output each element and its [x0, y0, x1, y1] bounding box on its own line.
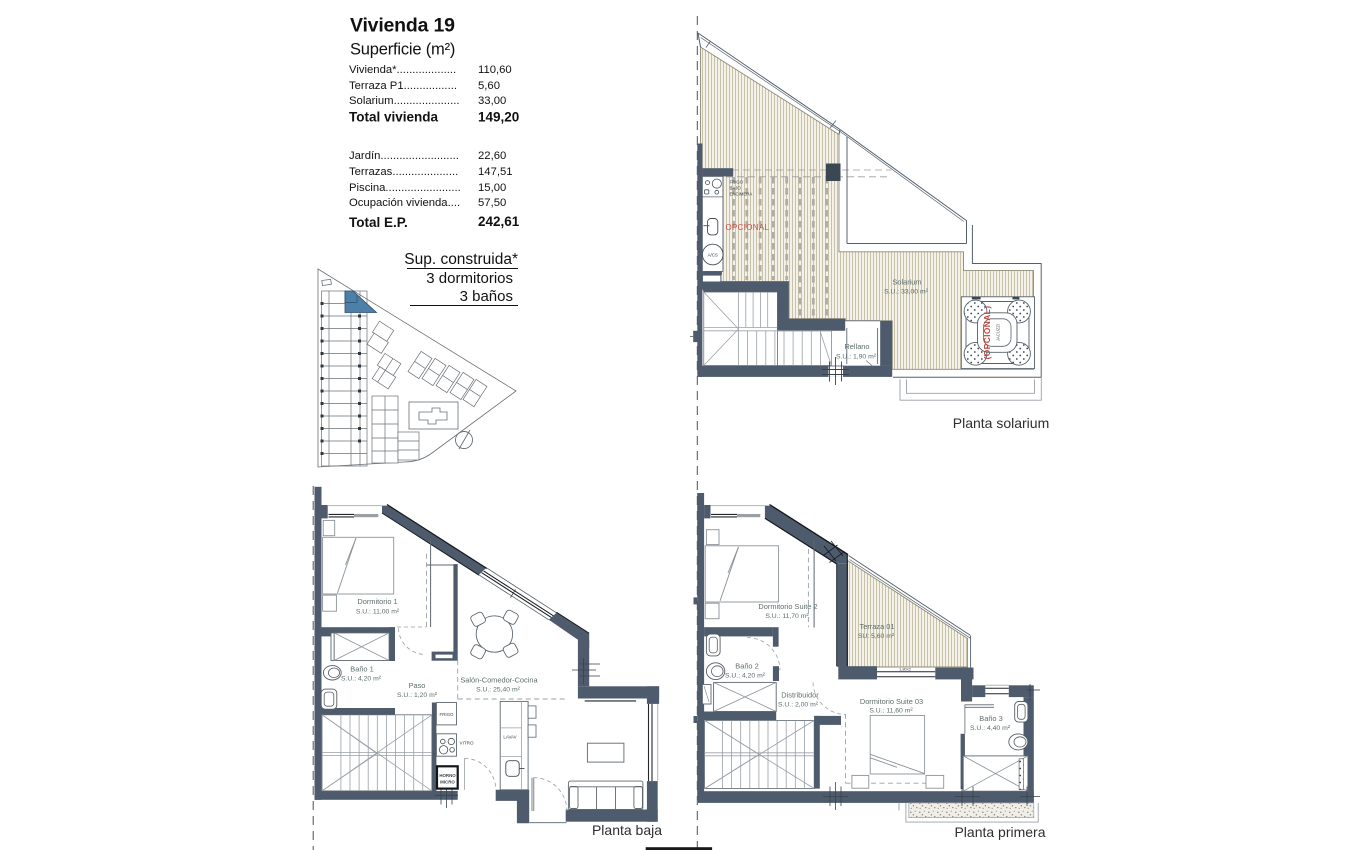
svg-text:BAJO: BAJO [730, 186, 742, 191]
svg-text:S.U.: 4,20 m²: S.U.: 4,20 m² [725, 673, 766, 680]
svg-text:33,00: 33,00 [478, 95, 506, 107]
svg-text:Distribuidor: Distribuidor [781, 691, 819, 700]
svg-text:5,60: 5,60 [478, 80, 500, 92]
svg-text:MICRO: MICRO [440, 780, 455, 785]
svg-text:110,60: 110,60 [478, 64, 512, 76]
svg-text:Terraza 01: Terraza 01 [860, 622, 895, 631]
svg-text:Planta primera: Planta primera [954, 824, 1045, 840]
svg-text:S.U.: 33,00 m²: S.U.: 33,00 m² [884, 289, 929, 296]
svg-text:Vivienda*...................: Vivienda*................... [349, 64, 456, 76]
svg-text:3 baños: 3 baños [460, 288, 513, 305]
svg-text:Piscina.......................: Piscina........................ [349, 182, 461, 194]
svg-text:Baño 2: Baño 2 [735, 662, 758, 671]
svg-text:Dormitorio 1: Dormitorio 1 [357, 597, 397, 606]
svg-text:S.U.: 2,00 m²: S.U.: 2,00 m² [778, 702, 819, 709]
svg-text:(OPCIONAL): (OPCIONAL) [982, 306, 992, 360]
svg-text:Baño 3: Baño 3 [979, 714, 1002, 723]
svg-text:Total E.P.: Total E.P. [349, 215, 408, 230]
svg-text:FRIGO: FRIGO [440, 712, 454, 717]
svg-text:A/CS: A/CS [708, 253, 718, 258]
svg-text:Terraza P1.................: Terraza P1................. [349, 80, 457, 92]
svg-text:S.U.: 4,40 m²: S.U.: 4,40 m² [970, 725, 1011, 732]
svg-text:242,61: 242,61 [478, 214, 520, 229]
svg-text:57,50: 57,50 [478, 197, 506, 209]
svg-text:S.U.: 11,00 m²: S.U.: 11,00 m² [356, 609, 400, 616]
svg-text:SU: 5,60 m²: SU: 5,60 m² [858, 633, 895, 640]
svg-text:LAVAV: LAVAV [503, 735, 516, 740]
svg-text:Planta baja: Planta baja [592, 822, 662, 838]
svg-text:S.U.: 11,60 m²: S.U.: 11,60 m² [869, 708, 913, 715]
svg-text:Superficie (m²): Superficie (m²) [350, 41, 455, 59]
svg-text:Sup. construida*: Sup. construida* [404, 251, 518, 268]
svg-text:Jardín........................: Jardín......................... [349, 150, 459, 162]
svg-text:149,20: 149,20 [478, 110, 519, 125]
svg-text:Total vivienda: Total vivienda [349, 110, 439, 125]
svg-text:Salón-Comedor-Cocina: Salón-Comedor-Cocina [460, 676, 538, 685]
svg-text:147,51: 147,51 [478, 166, 513, 178]
svg-text:Paso: Paso [409, 681, 426, 690]
svg-text:1,80x2: 1,80x2 [899, 666, 912, 671]
svg-text:Baño 1: Baño 1 [350, 665, 373, 674]
svg-text:S.U.: 1,90 m²: S.U.: 1,90 m² [836, 354, 877, 361]
svg-text:3 dormitorios: 3 dormitorios [426, 270, 513, 287]
svg-text:S.U.: 4,20 m²: S.U.: 4,20 m² [341, 676, 382, 683]
svg-text:S.U.: 1,20 m²: S.U.: 1,20 m² [397, 692, 438, 699]
svg-text:Solarium: Solarium [892, 278, 921, 287]
svg-text:HORNO: HORNO [439, 773, 456, 778]
svg-text:Terrazas.....................: Terrazas..................... [349, 166, 458, 178]
svg-text:FRIGO: FRIGO [730, 180, 744, 185]
svg-text:Ocupación vivienda....: Ocupación vivienda.... [349, 197, 460, 209]
svg-text:Dormitorio Suite 03: Dormitorio Suite 03 [860, 697, 923, 706]
svg-text:15,00: 15,00 [478, 182, 506, 194]
svg-text:S.U.: 25,40 m²: S.U.: 25,40 m² [476, 687, 521, 694]
svg-text:JACUZZI: JACUZZI [996, 324, 1001, 341]
svg-text:Solarium.....................: Solarium..................... [349, 95, 460, 107]
svg-text:22,60: 22,60 [478, 150, 506, 162]
svg-text:S.U.: 11,70 m²: S.U.: 11,70 m² [765, 613, 809, 620]
svg-text:Rellano: Rellano [844, 342, 869, 351]
svg-text:Vivienda 19: Vivienda 19 [350, 15, 455, 37]
svg-text:VITRO: VITRO [460, 741, 474, 746]
svg-text:Planta solarium: Planta solarium [953, 415, 1050, 431]
svg-text:OPCIONAL: OPCIONAL [726, 223, 770, 232]
svg-text:ENCIMERA: ENCIMERA [730, 192, 753, 197]
